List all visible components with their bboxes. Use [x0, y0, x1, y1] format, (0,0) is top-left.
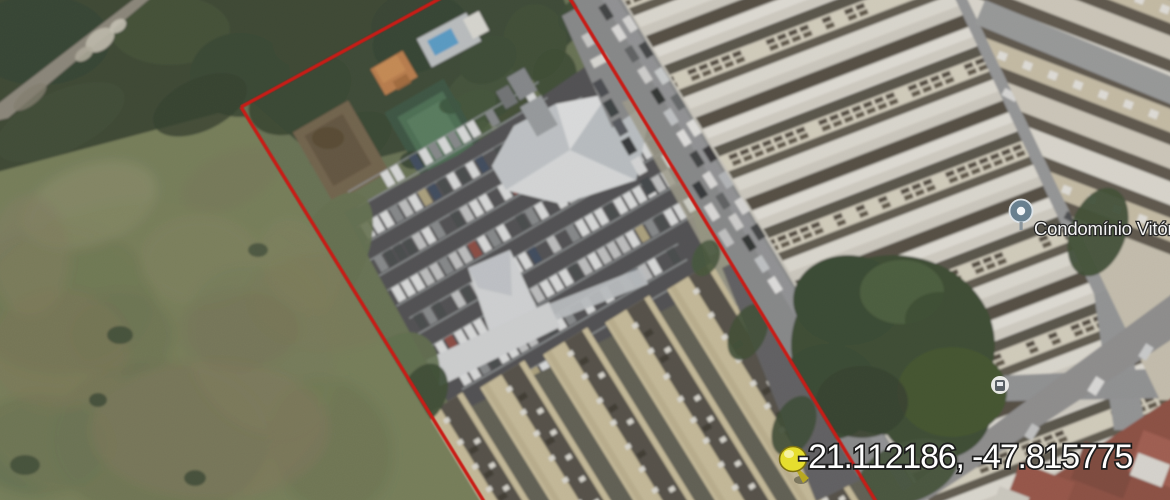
svg-text:-21.112186, -47.815775: -21.112186, -47.815775	[798, 438, 1132, 476]
svg-text:Condomínio Vitór: Condomínio Vitór	[1034, 218, 1170, 239]
